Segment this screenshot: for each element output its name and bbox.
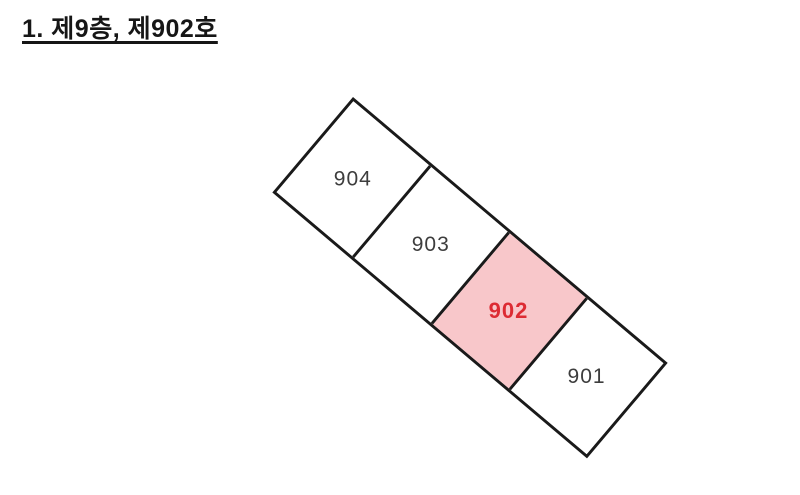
page: 1. 제9층, 제902호 904 903 902 901 [0, 0, 800, 495]
unit-label-901: 901 [568, 365, 606, 389]
unit-label-903: 903 [412, 233, 450, 257]
page-title: 1. 제9층, 제902호 [22, 9, 218, 45]
unit-label-904: 904 [334, 167, 372, 191]
unit-label-902: 902 [489, 298, 529, 324]
floor-plan-strip: 904 903 902 901 [272, 97, 667, 458]
